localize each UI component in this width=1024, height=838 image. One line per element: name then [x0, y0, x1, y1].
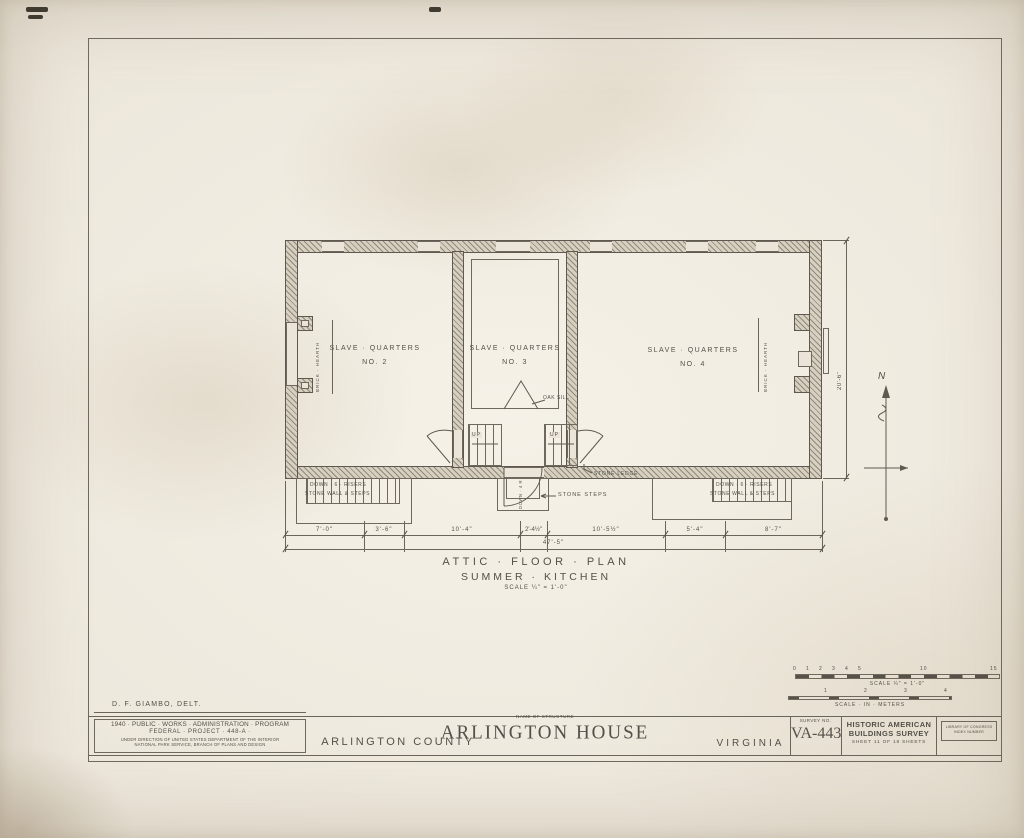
- north-arrow-label: N: [878, 371, 886, 382]
- figure-title-scale: SCALE ¼" = 1'-0": [336, 585, 736, 591]
- structure-name-caption: NAME OF STRUCTURE: [480, 714, 610, 719]
- stone-steps-label: STONE STEPS: [558, 492, 607, 498]
- loc-line1: LIBRARY OF CONGRESS: [941, 725, 997, 729]
- hearth-flue: [798, 351, 812, 367]
- scale-tick: 2: [819, 666, 823, 672]
- habs-line2: BUILDINGS SURVEY: [843, 729, 935, 738]
- drawing-sheet: SLAVE · QUARTERS NO. 2 SLAVE · QUARTERS …: [0, 0, 1024, 838]
- dim-segment: 7'-0": [285, 527, 364, 533]
- extension-line: [364, 521, 365, 552]
- scale-tick: 10: [920, 666, 928, 672]
- hearth-flue: [301, 382, 309, 389]
- extension-line: [822, 481, 823, 552]
- overall-dimension-line: [285, 549, 822, 550]
- scale-bar-meters: [788, 696, 952, 700]
- scale-bar-feet: [795, 674, 1000, 679]
- scale-tick: 0: [793, 666, 797, 672]
- dim-segment: 3'-6": [364, 527, 404, 533]
- right-stair-label-2: STONE WALL & STEPS: [710, 491, 775, 497]
- extension-line: [520, 521, 521, 552]
- program-line2: FEDERAL · PROJECT · 448-A ·: [96, 729, 304, 735]
- hearth-flue: [301, 320, 309, 327]
- window-opening: [496, 241, 530, 252]
- hearth-niche-left: [286, 322, 297, 386]
- survey-no-caption: SURVEY NO.: [791, 718, 840, 723]
- sheet-number-line: SHEET 11 OF 18 SHEETS: [843, 740, 935, 745]
- dim-segment: 10'-4": [404, 527, 520, 533]
- state-label: VIRGINIA: [703, 738, 798, 749]
- delineator-credit: D. F. GIAMBO, DELT.: [112, 701, 202, 708]
- extension-line: [725, 521, 726, 552]
- brick-hearth-label-left: BRICK · HEARTH: [315, 324, 320, 392]
- room-label-4-line1: SLAVE · QUARTERS: [608, 347, 778, 354]
- registration-mark: [28, 15, 43, 19]
- window-opening: [418, 241, 440, 252]
- scale-bar-feet-label: SCALE ¼" = 1'-0": [795, 681, 1000, 687]
- left-stair-label-2: STONE WALL & STEPS: [305, 491, 370, 497]
- window-opening: [686, 241, 708, 252]
- dim-segment: 8'-7": [725, 527, 822, 533]
- survey-number: VA-443: [791, 725, 840, 743]
- title-block-divider: [841, 716, 842, 755]
- stone-ledge-label: STONE LEDGE: [594, 471, 638, 477]
- scale-bar-meters-label: SCALE · IN · METERS: [788, 702, 952, 708]
- program-line4: NATIONAL PARK SERVICE, BRANCH OF PLANS A…: [96, 742, 304, 747]
- scale-tick: 4: [845, 666, 849, 672]
- program-line1: 1940 · PUBLIC · WORKS · ADMINISTRATION ·…: [96, 721, 304, 728]
- room-label-4-line2: NO. 4: [608, 361, 778, 368]
- hearth-bracket-line: [332, 320, 333, 394]
- vertical-dimension-line: [846, 240, 847, 479]
- stair-flight-left: [468, 424, 502, 466]
- title-block-bottom-line: [88, 755, 1002, 756]
- dim-segment: 2'-4½": [518, 527, 549, 533]
- scale-tick: 3: [832, 666, 836, 672]
- loc-line2: INDEX NUMBER: [941, 730, 997, 734]
- extension-line: [404, 521, 405, 552]
- up-label-right: UP: [549, 432, 560, 438]
- extension-line: [665, 521, 666, 552]
- left-stair-label-1: DOWN · 6 · RISERS: [310, 482, 366, 488]
- wall-top: [285, 240, 822, 253]
- brick-hearth-label-right: BRICK · HEARTH: [763, 320, 768, 392]
- door-opening: [504, 467, 544, 478]
- attic-knee-wall-outline: [471, 259, 559, 409]
- chimney-outline: [823, 328, 829, 374]
- hearth-jamb: [794, 376, 810, 393]
- up-label-left: UP: [471, 432, 482, 438]
- scale-tick: 1: [824, 688, 828, 694]
- hearth-jamb: [794, 314, 810, 331]
- room-label-2-line2: NO. 2: [300, 359, 450, 366]
- registration-mark: [26, 7, 48, 12]
- hearth-bracket-line: [758, 318, 759, 392]
- right-stair-label-1: DOWN · 6 · RISERS: [716, 482, 772, 488]
- scale-tick: 3: [904, 688, 908, 694]
- oak-sill-label: OAK SILL: [543, 395, 569, 401]
- room-label-3-line1: SLAVE · QUARTERS: [465, 345, 565, 352]
- dim-overall: 47'-5": [285, 540, 822, 546]
- dimension-line: [285, 535, 822, 536]
- stair-flight-right: [544, 424, 578, 466]
- figure-title-line1: ATTIC · FLOOR · PLAN: [336, 556, 736, 568]
- window-opening: [756, 241, 778, 252]
- extension-line: [547, 521, 548, 552]
- scale-tick: 4: [944, 688, 948, 694]
- habs-line1: HISTORIC AMERICAN: [843, 720, 935, 729]
- figure-title-line2: SUMMER · KITCHEN: [336, 571, 736, 583]
- room-label-2-line1: SLAVE · QUARTERS: [300, 345, 450, 352]
- scale-tick: 1: [806, 666, 810, 672]
- door-opening: [453, 430, 463, 458]
- down-4-risers-label: DOWN · 4 R: [518, 479, 523, 509]
- dim-segment: 10'-5½": [547, 527, 665, 533]
- title-block-divider: [936, 716, 937, 755]
- scale-tick: 5: [858, 666, 862, 672]
- window-opening: [322, 241, 344, 252]
- scale-tick: 15: [990, 666, 998, 672]
- window-opening: [590, 241, 612, 252]
- stone-steps-center-inner: [506, 478, 540, 499]
- scale-tick: 2: [864, 688, 868, 694]
- structure-name: ARLINGTON HOUSE: [430, 721, 660, 745]
- registration-mark: [429, 7, 441, 12]
- dim-segment: 5'-4": [665, 527, 725, 533]
- dim-right-vertical: 20'-6": [837, 330, 843, 390]
- room-label-3-line2: NO. 3: [465, 359, 565, 366]
- delineator-underline: [94, 712, 306, 713]
